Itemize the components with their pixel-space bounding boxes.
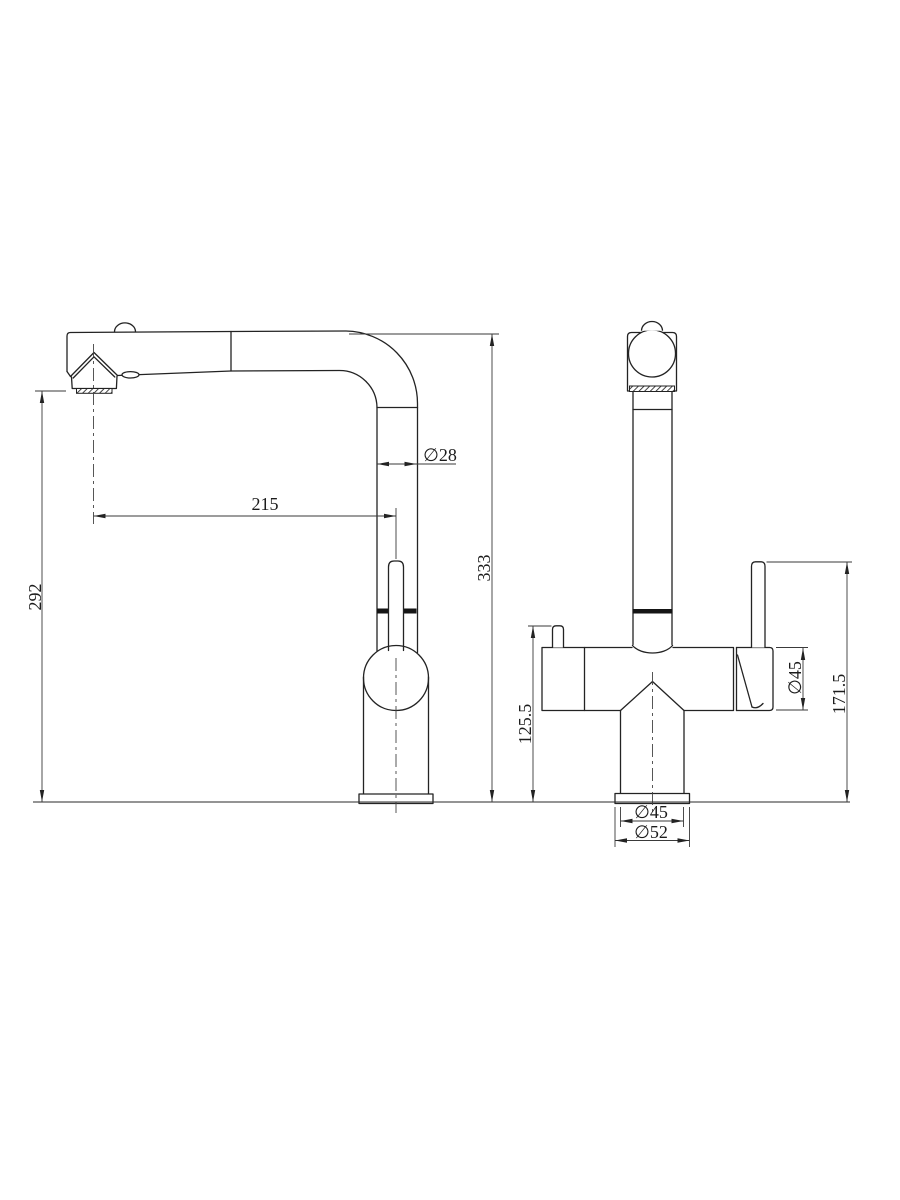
dim-valve-body-diameter-label: ∅45: [785, 661, 805, 695]
dim-tube-diameter-label: ∅28: [423, 445, 457, 465]
sprayer-button-front: [642, 321, 663, 330]
right-valve-detail-diagonal: [738, 655, 753, 707]
dim-spout-reach: 215: [94, 494, 397, 559]
dim-body-top-height-label: 125.5: [515, 704, 535, 745]
aerator-face: [77, 389, 113, 394]
head-corner: [67, 372, 71, 377]
dimensions: 292 215 ∅28 333 125.5: [25, 334, 852, 847]
faucet-dimension-drawing: 292 215 ∅28 333 125.5: [0, 0, 900, 1200]
handle-lever-fill: [389, 561, 404, 651]
tube-joint-band: [633, 609, 673, 614]
valve-body: [542, 648, 734, 711]
dim-spout-height: 292: [25, 391, 66, 802]
right-valve-section: [737, 648, 774, 711]
dim-base-diameter-label: ∅45: [634, 802, 668, 822]
dim-spout-height-label: 292: [25, 584, 45, 611]
spout-arm-inner: [118, 370, 378, 651]
sprayer-head-front: [629, 330, 676, 377]
dim-handle-top-height-label: 171.5: [829, 674, 849, 715]
hose-clip: [122, 372, 139, 378]
spout-arm-outer: [67, 331, 418, 653]
dim-handle-top-height: 171.5: [767, 562, 853, 802]
aerator-face-front: [630, 386, 675, 392]
dim-flange-diameter-label: ∅52: [634, 822, 668, 842]
technical-drawing-page: 292 215 ∅28 333 125.5: [0, 0, 900, 1200]
right-valve-detail-arc: [752, 704, 763, 708]
right-lever: [752, 562, 766, 648]
side-view: [67, 323, 433, 813]
dim-spout-reach-label: 215: [252, 494, 279, 514]
front-view: [542, 321, 773, 813]
dim-overall-height-label: 333: [474, 555, 494, 582]
dim-valve-body-diameter: ∅45: [776, 648, 808, 711]
dim-overall-height: 333: [349, 334, 499, 802]
sprayer-button: [115, 323, 136, 332]
dim-body-top-height: 125.5: [515, 626, 552, 802]
tube-body-junction: [633, 646, 673, 654]
left-lever: [553, 626, 564, 648]
nozzle-cup: [72, 376, 118, 388]
